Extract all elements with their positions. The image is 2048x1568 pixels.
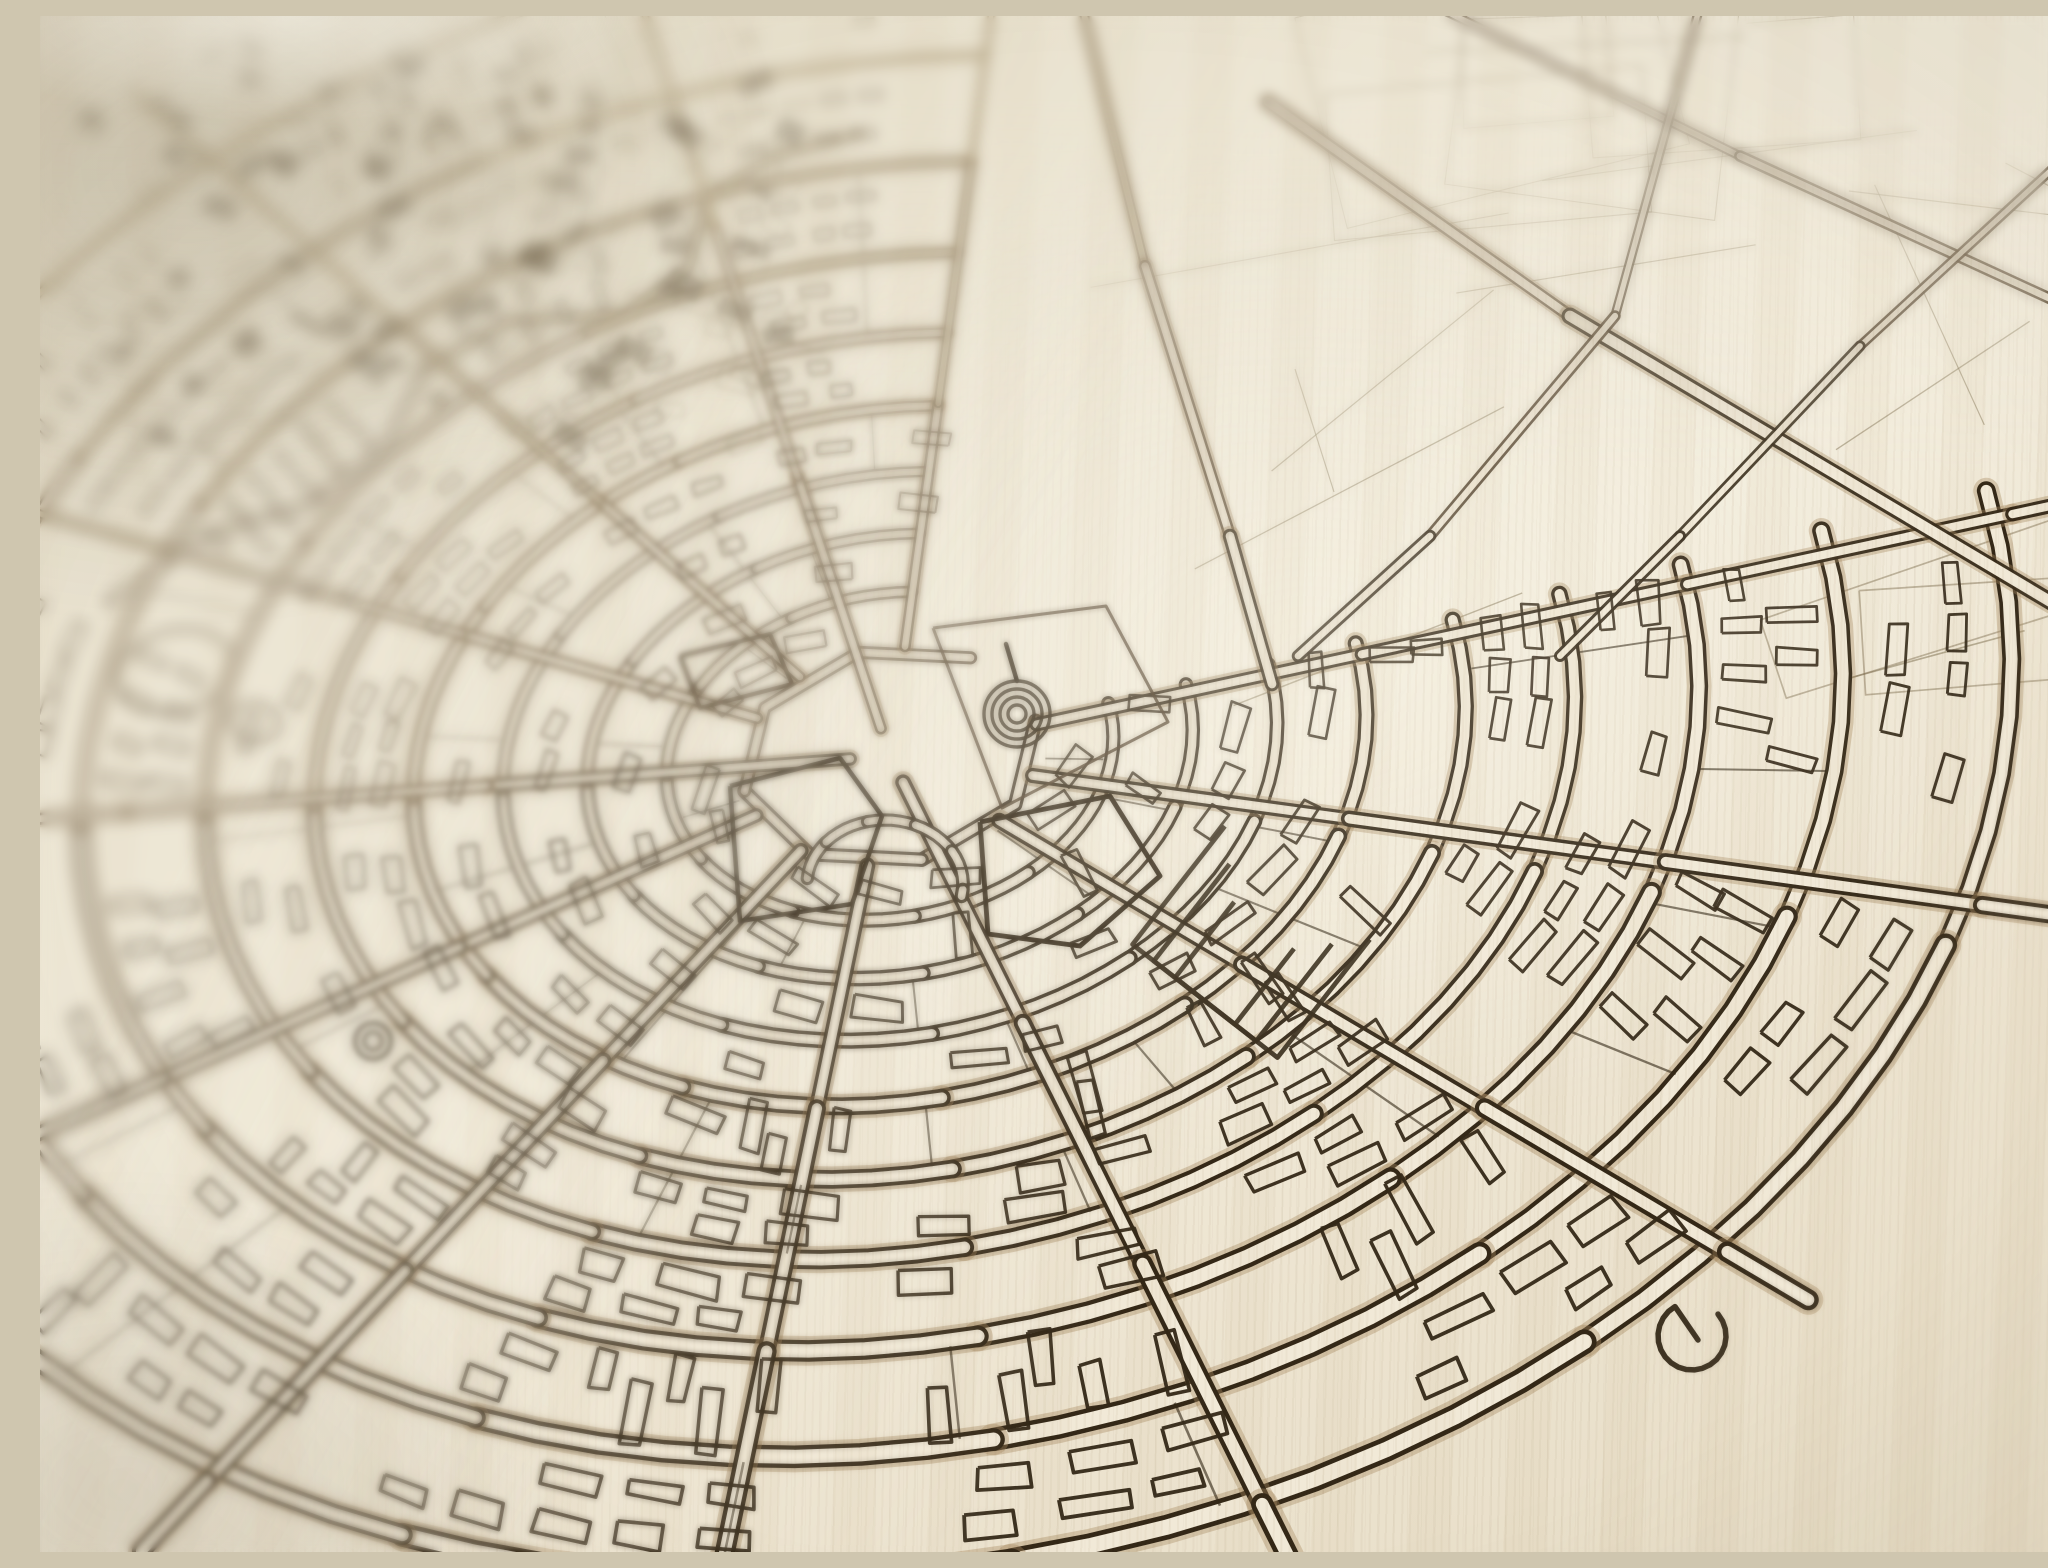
- engraved-map-drawing: [40, 16, 2048, 1552]
- landmarks-layer: [355, 606, 1726, 1370]
- wooden-city-map-photo: Close-up angled photograph of a laser-en…: [40, 16, 2048, 1552]
